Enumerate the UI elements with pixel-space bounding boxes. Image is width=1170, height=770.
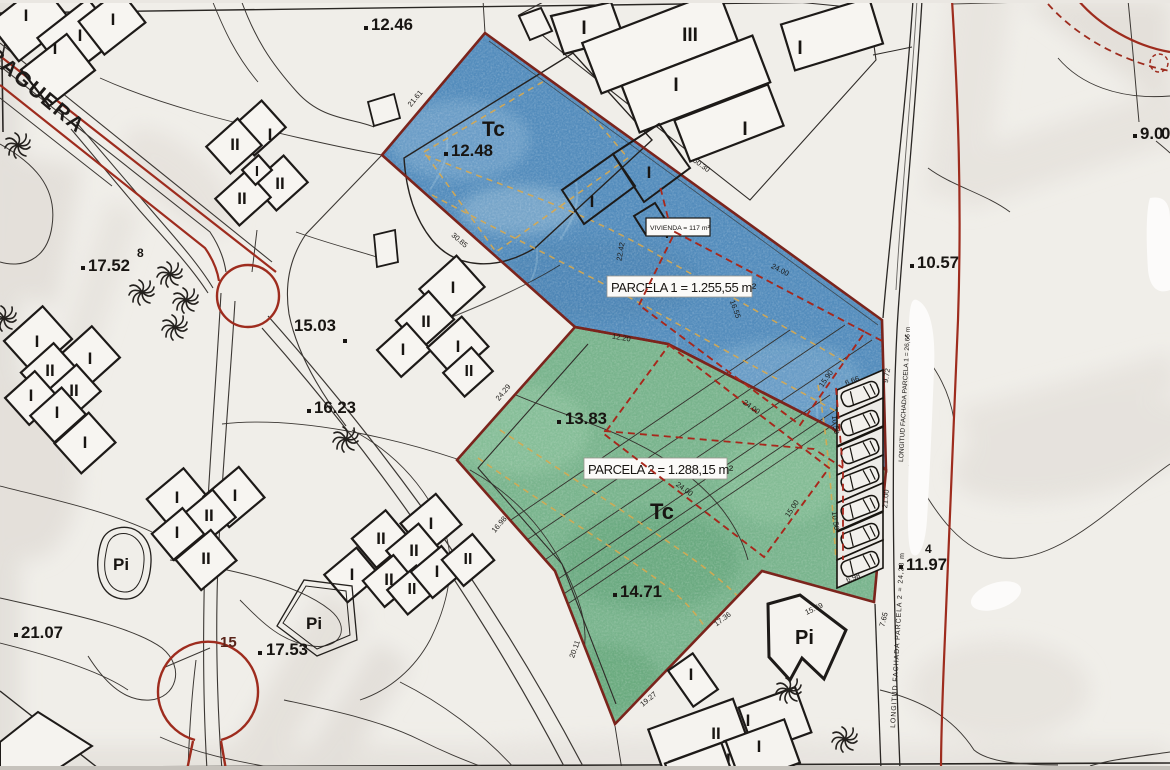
svg-text:PARCELA 1 = 1.255,55 m²: PARCELA 1 = 1.255,55 m² (611, 280, 757, 295)
svg-text:12.48: 12.48 (451, 141, 493, 160)
svg-text:II: II (275, 174, 284, 193)
svg-text:II: II (409, 541, 418, 560)
svg-text:I: I (175, 488, 180, 507)
svg-text:I: I (435, 562, 440, 581)
svg-text:10.57: 10.57 (917, 253, 959, 272)
svg-text:I: I (581, 18, 586, 39)
svg-text:I: I (78, 26, 83, 45)
svg-text:I: I (24, 6, 29, 25)
svg-text:21.00: 21.00 (880, 489, 891, 508)
svg-text:I: I (689, 665, 694, 684)
svg-text:I: I (175, 523, 180, 542)
svg-text:II: II (237, 189, 246, 208)
svg-text:II: II (201, 549, 210, 568)
svg-text:I: I (742, 119, 747, 140)
svg-text:Pi: Pi (306, 614, 322, 633)
svg-text:I: I (233, 486, 238, 505)
svg-text:II: II (230, 135, 239, 154)
svg-text:II: II (408, 581, 417, 598)
svg-text:0: 0 (1161, 124, 1170, 143)
svg-text:I: I (429, 514, 434, 533)
svg-text:15.03: 15.03 (294, 316, 336, 335)
svg-text:II: II (45, 361, 54, 380)
svg-text:9.0: 9.0 (1140, 124, 1163, 143)
svg-text:I: I (456, 337, 461, 356)
svg-text:Pi: Pi (795, 627, 814, 649)
svg-text:I: I (53, 39, 58, 58)
svg-text:I: I (757, 737, 762, 756)
svg-text:I: I (29, 386, 34, 405)
svg-text:I: I (797, 38, 802, 59)
svg-text:I: I (451, 278, 456, 297)
svg-text:I: I (746, 711, 751, 730)
svg-text:I: I (647, 163, 652, 182)
svg-text:11.97: 11.97 (906, 555, 947, 574)
svg-text:III: III (682, 25, 698, 46)
svg-text:8: 8 (137, 246, 144, 260)
svg-text:II: II (376, 529, 385, 548)
svg-text:12.46: 12.46 (371, 15, 413, 34)
svg-text:I: I (401, 340, 406, 359)
svg-text:Tc: Tc (482, 118, 505, 141)
svg-text:14.71: 14.71 (620, 582, 662, 601)
svg-text:15: 15 (220, 634, 237, 651)
svg-text:I: I (83, 433, 88, 452)
svg-text:II: II (421, 312, 430, 331)
svg-text:I: I (88, 349, 93, 368)
svg-text:I: I (350, 565, 355, 584)
svg-text:II: II (711, 724, 720, 743)
svg-text:II: II (464, 551, 473, 568)
svg-text:Pi: Pi (113, 555, 129, 574)
svg-text:21.07: 21.07 (21, 623, 63, 642)
svg-text:4: 4 (925, 542, 932, 556)
svg-text:16.23: 16.23 (314, 398, 356, 417)
svg-text:PARCELA 2 = 1.288,15 m²: PARCELA 2 = 1.288,15 m² (588, 462, 734, 477)
svg-text:II: II (69, 381, 78, 400)
svg-text:I: I (35, 332, 40, 351)
svg-text:I: I (590, 192, 595, 211)
svg-text:Tc: Tc (650, 499, 674, 524)
svg-text:13.83: 13.83 (565, 409, 607, 428)
svg-text:17.52: 17.52 (88, 256, 130, 275)
svg-text:II: II (465, 363, 474, 380)
svg-text:I: I (111, 10, 116, 29)
svg-text:II: II (204, 506, 213, 525)
svg-text:17.53: 17.53 (266, 640, 308, 659)
svg-text:I: I (673, 75, 678, 96)
svg-text:I: I (268, 125, 273, 144)
svg-text:I: I (255, 163, 259, 180)
svg-text:I: I (55, 403, 60, 422)
svg-text:VIVIENDA = 117 m²: VIVIENDA = 117 m² (650, 225, 710, 232)
svg-text:II: II (384, 570, 393, 589)
